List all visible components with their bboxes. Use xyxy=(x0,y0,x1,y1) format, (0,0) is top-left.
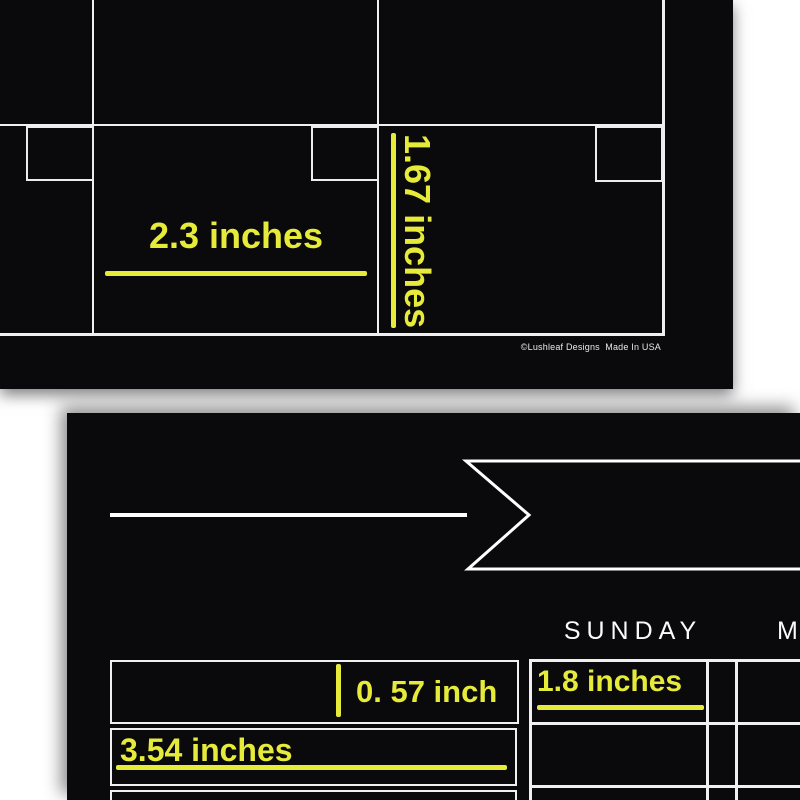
day-grid-row-line-1 xyxy=(529,722,800,725)
notes-row-box-3 xyxy=(110,790,517,800)
day-grid-row-line-2 xyxy=(529,785,800,788)
row-height-dimension-label: 0. 57 inch xyxy=(356,676,497,707)
cell-width-dimension-line xyxy=(105,271,367,276)
cell-height-dimension-line xyxy=(391,133,396,328)
column-width-dimension-line xyxy=(537,705,704,710)
day-grid-divider-2 xyxy=(735,659,738,800)
pointer-line xyxy=(110,513,467,517)
day-grid-left-border xyxy=(529,659,532,800)
day-grid-top-border xyxy=(529,659,800,662)
notes-width-dimension-label: 3.54 inches xyxy=(120,734,293,766)
ribbon-banner-icon xyxy=(455,450,800,580)
date-box-1 xyxy=(26,126,94,181)
cell-height-dimension-label: 1.67 inches xyxy=(397,133,437,330)
row-height-dimension-line xyxy=(336,664,341,717)
top-calendar-board: 2.3 inches 1.67 inches ©Lushleaf Designs… xyxy=(0,0,733,389)
copyright-text: ©Lushleaf Designs Made In USA xyxy=(521,342,661,352)
day-header-sunday: SUNDAY xyxy=(543,619,723,644)
grid-border-bottom xyxy=(0,333,665,336)
column-width-dimension-label: 1.8 inches xyxy=(537,667,682,697)
date-box-3 xyxy=(595,126,663,182)
day-header-monday-partial: M xyxy=(777,619,800,644)
cell-width-dimension-label: 2.3 inches xyxy=(105,218,367,254)
bottom-planner-board: SUNDAY M 0. 57 inch 3.54 inches 1.8 inch… xyxy=(67,413,800,800)
notes-width-dimension-line xyxy=(116,765,507,770)
product-screenshot: { "colors": { "board_black": "#0a0a0c", … xyxy=(0,0,800,800)
date-box-2 xyxy=(311,126,379,181)
day-grid-divider-1 xyxy=(706,659,709,800)
